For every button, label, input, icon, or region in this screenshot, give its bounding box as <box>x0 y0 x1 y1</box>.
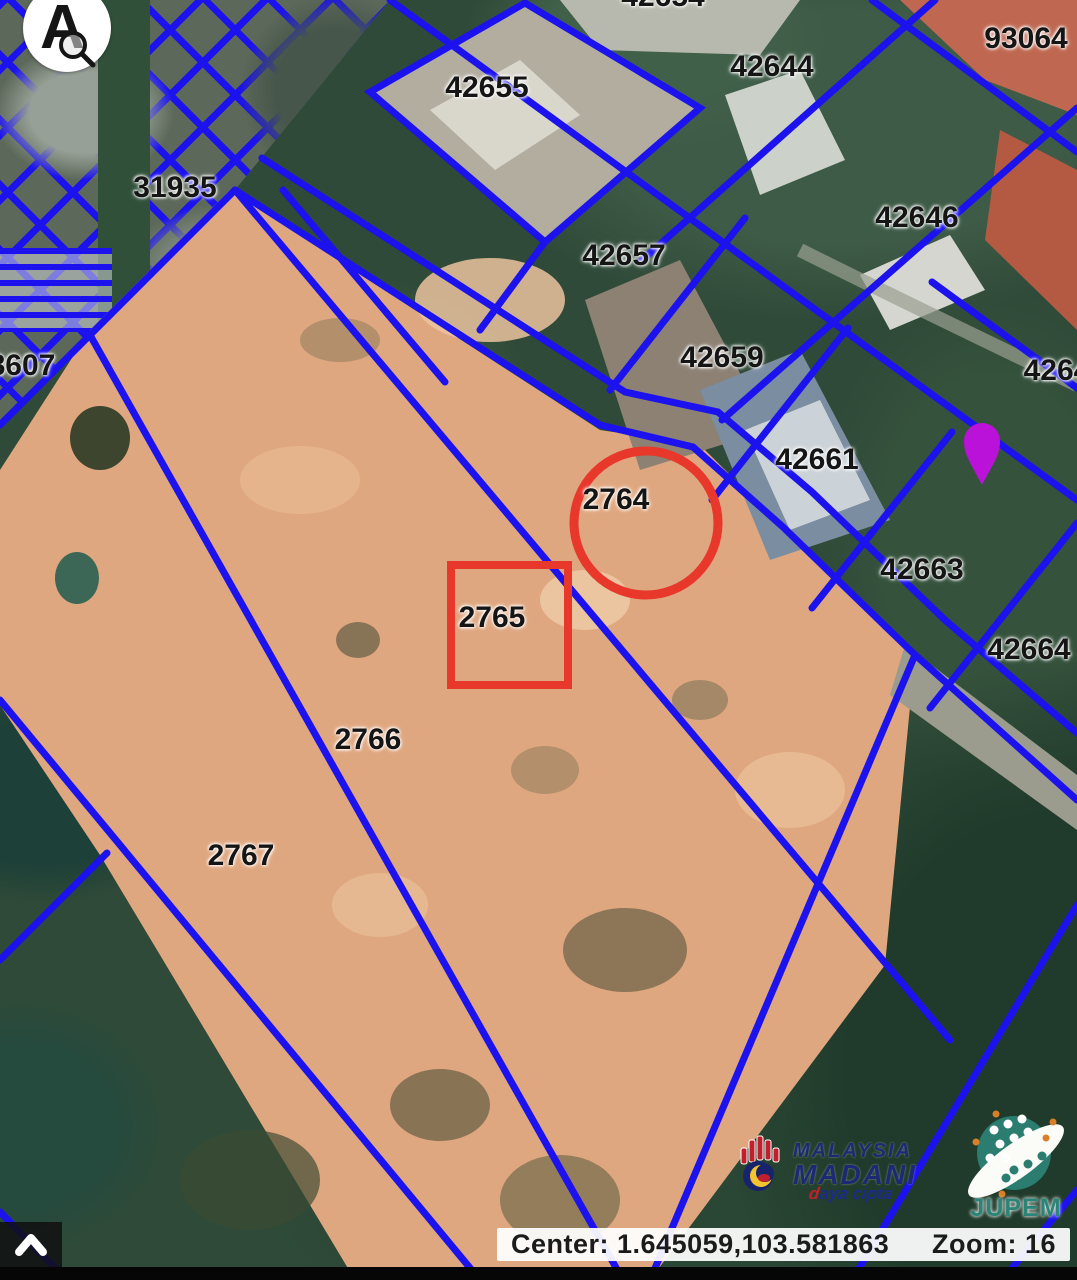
jupem-text: JUPEM <box>970 1194 1061 1223</box>
parcel-label-2767: 2767 <box>208 839 275 873</box>
madani-hand-icon <box>731 1134 789 1196</box>
parcel-label-42663: 42663 <box>880 553 963 587</box>
parcel-label-42654: 42654 <box>621 0 704 14</box>
parcel-label-42664: 42664 <box>987 633 1070 667</box>
parcel-label-8607: 8607 <box>0 349 55 383</box>
bottom-letterbox <box>0 1267 1077 1280</box>
magnifier-icon <box>23 0 111 72</box>
parcel-label-2766: 2766 <box>335 723 402 757</box>
parcel-label-42646: 42646 <box>875 201 958 235</box>
madani-script: daya cipta <box>808 1184 894 1204</box>
map-pin[interactable] <box>964 423 1000 485</box>
parcel-label-2765: 2765 <box>459 601 526 635</box>
status-center: Center: 1.645059,103.581863 <box>511 1229 889 1260</box>
madani-logo: MALAYSIA MADANI daya cipta <box>731 1128 946 1206</box>
parcel-label-2764: 2764 <box>583 483 650 517</box>
status-bar: Center: 1.645059,103.581863 Zoom: 16 <box>497 1228 1070 1261</box>
app-logo: A <box>23 0 111 72</box>
collapse-button[interactable] <box>0 1222 62 1268</box>
parcel-label-31935: 31935 <box>133 171 216 205</box>
status-zoom: Zoom: 16 <box>932 1229 1056 1260</box>
chevron-up-icon <box>5 1225 57 1265</box>
parcel-label-93064: 93064 <box>984 22 1067 56</box>
parcel-label-42644: 42644 <box>730 50 813 84</box>
jupem-logo: JUPEM <box>956 1098 1076 1223</box>
map-viewport[interactable]: 4265442655426449306431935426464265742659… <box>0 0 1077 1280</box>
parcel-label-42657: 42657 <box>582 239 665 273</box>
parcel-label-42661: 42661 <box>775 443 858 477</box>
parcel-label-4264: 4264 <box>1024 354 1077 388</box>
parcel-label-42655: 42655 <box>445 71 528 105</box>
parcel-label-42659: 42659 <box>680 341 763 375</box>
